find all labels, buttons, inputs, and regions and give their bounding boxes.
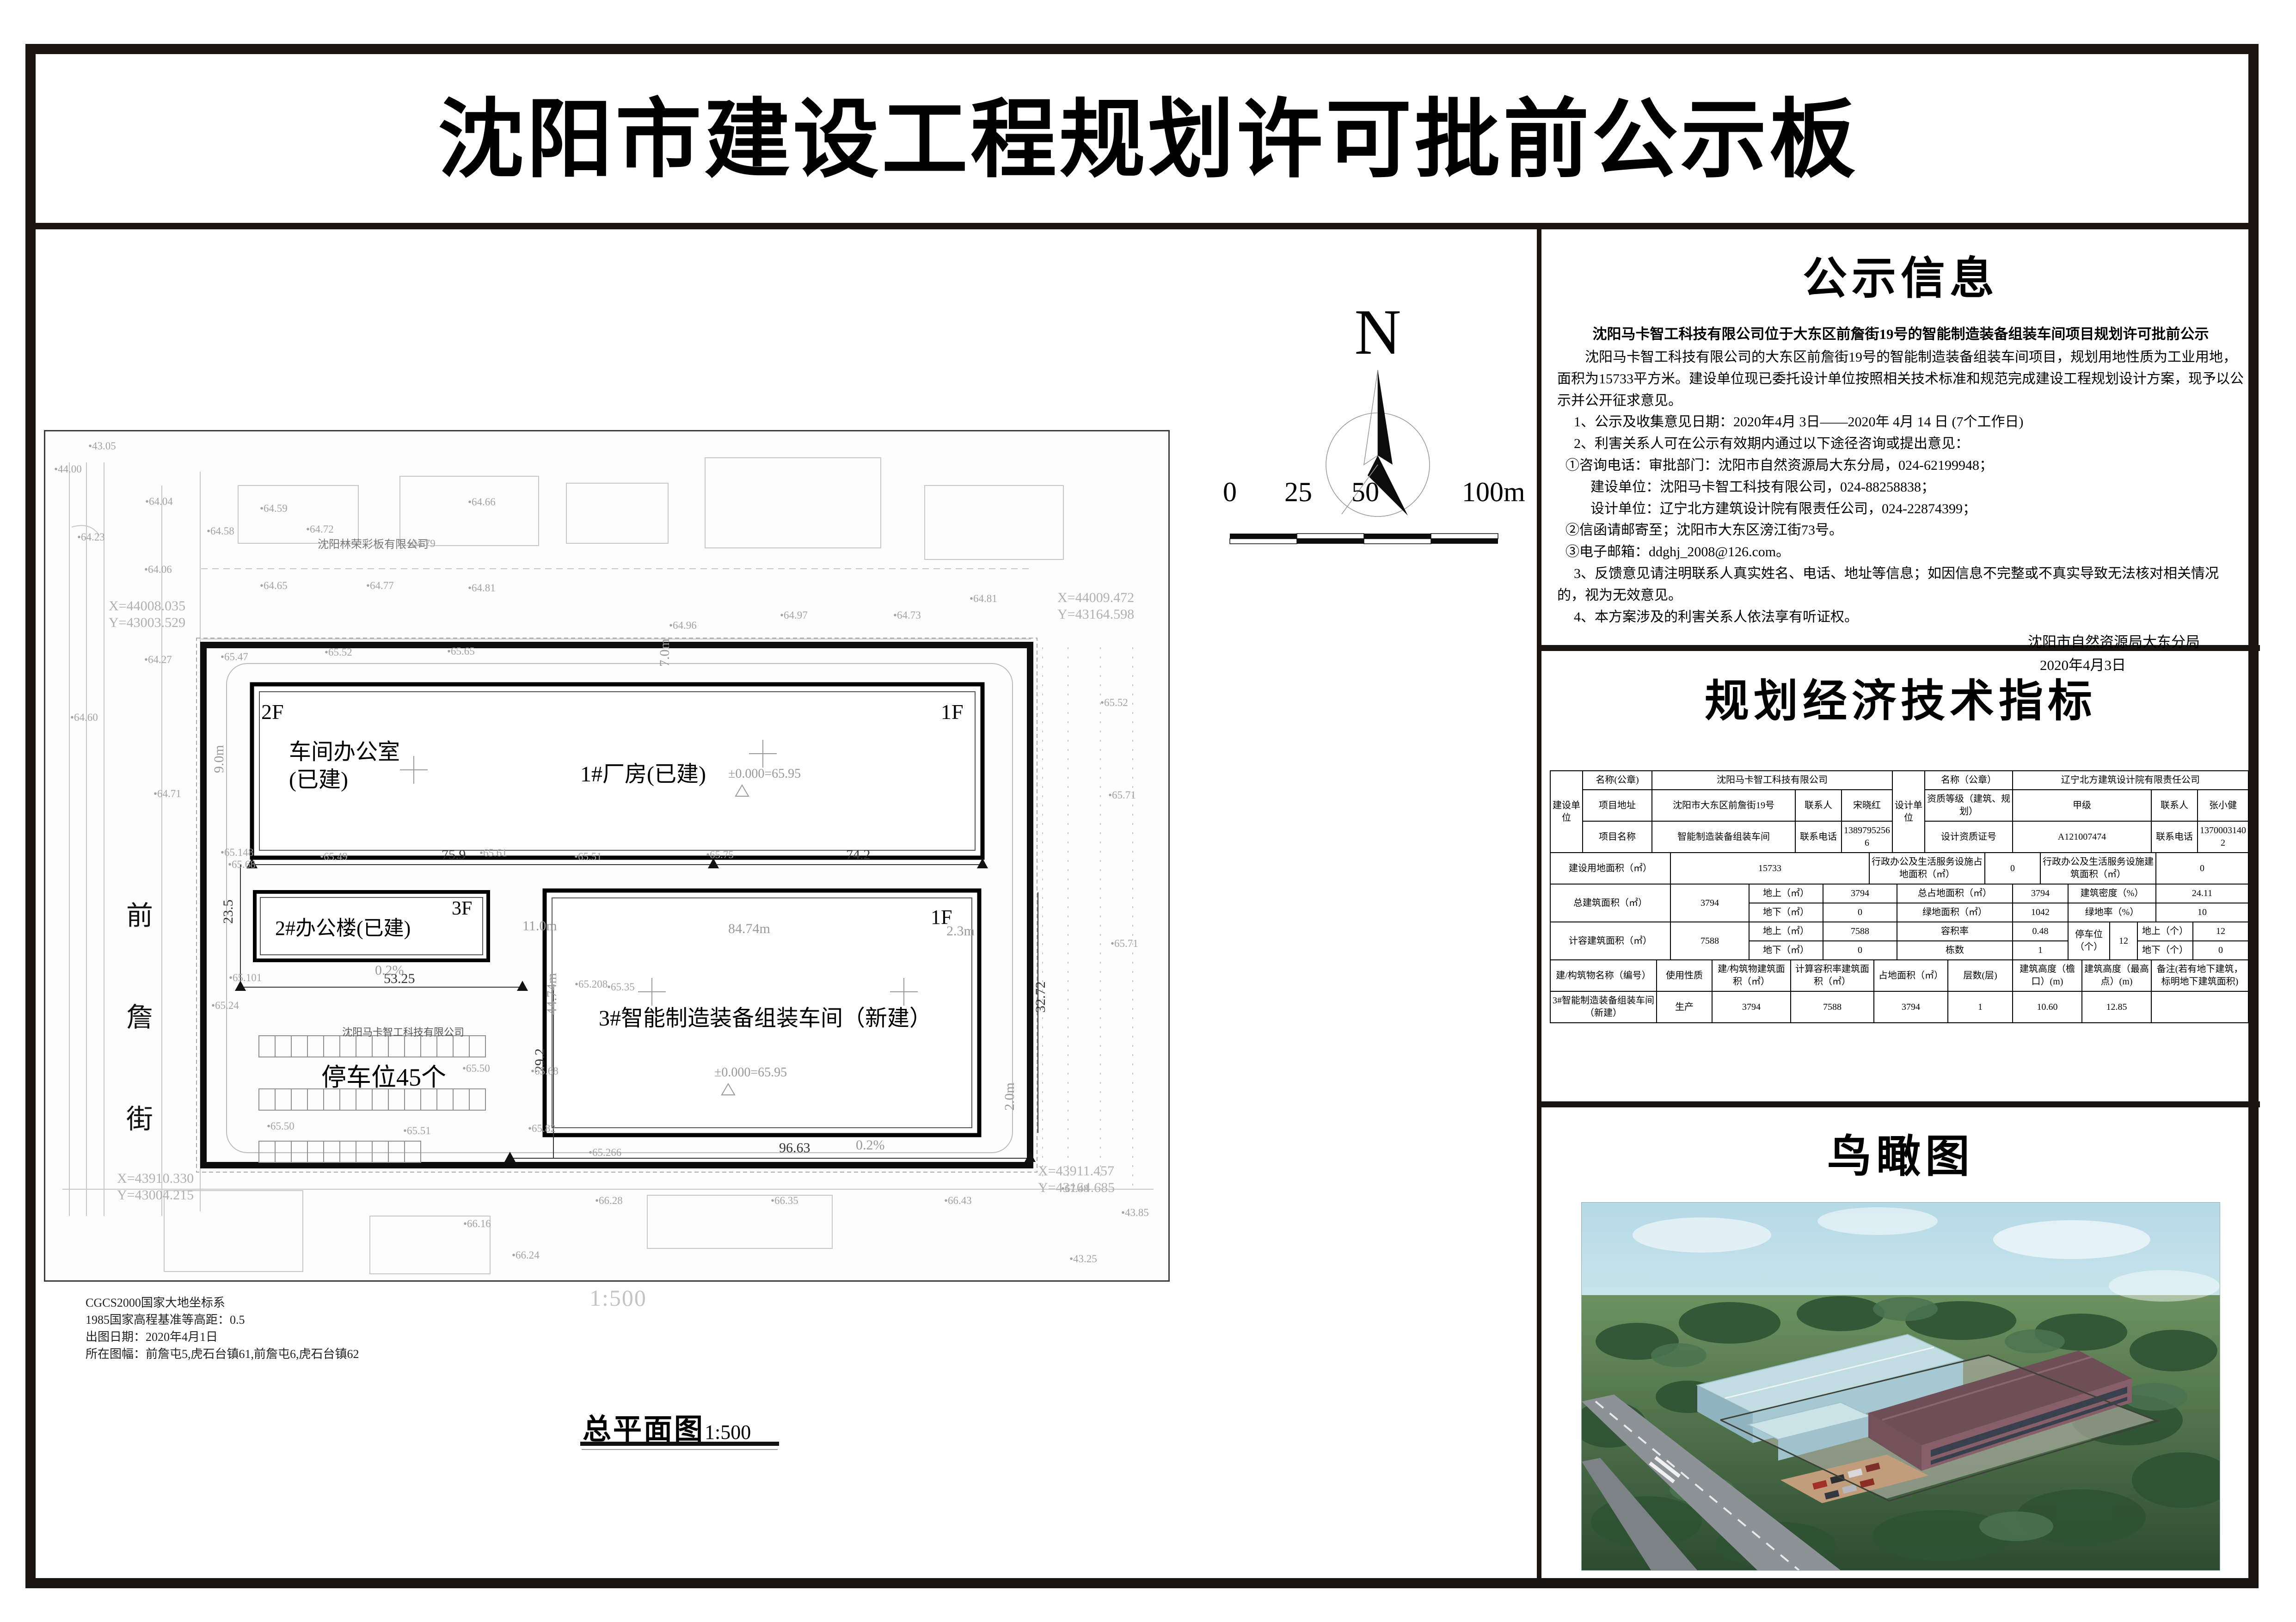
- table-cell: 地上（㎡）: [1749, 884, 1823, 903]
- notice-subtitle: 沈阳马卡智工科技有限公司位于大东区前詹街19号的智能制造装备组装车间项目规划许可…: [1541, 322, 2260, 343]
- dimension-label: 9.0m: [211, 745, 227, 773]
- table-cell: 占地面积（㎡）: [1874, 960, 1948, 991]
- dimension-label: 0.2%: [856, 1137, 885, 1153]
- coordinate-label-y: Y=43004.215: [117, 1187, 194, 1203]
- elevation-label: •64.59: [260, 503, 288, 514]
- table-cell: 沈阳马卡智工科技有限公司: [1652, 771, 1892, 790]
- notice-paragraph-10: 4、本方案涉及的利害关系人依法享有听证权。: [1557, 607, 2244, 628]
- table-cell: 0: [2193, 941, 2248, 960]
- elevation-label: •64.97: [780, 609, 808, 621]
- building1-floors-left: 2F: [261, 700, 284, 724]
- table-cell: 项目地址: [1583, 790, 1652, 821]
- elevation-label: •64.96: [669, 620, 697, 631]
- dimension-label: 2.3m: [946, 923, 975, 939]
- table-cell: 生产: [1657, 991, 1712, 1023]
- table-cell: 联系电话: [2151, 821, 2198, 853]
- notice-title: 公示信息: [1541, 242, 2260, 307]
- table-cell: 层数(层): [1948, 960, 2013, 991]
- elevation-label: •65.50: [267, 1120, 295, 1132]
- table-cell: 计容建筑面积（㎡）: [1550, 922, 1670, 960]
- table-cell: 绿地面积（㎡）: [1897, 903, 2013, 922]
- elevation-label: •65.68: [228, 859, 256, 870]
- notice-section: 公示信息 沈阳马卡智工科技有限公司位于大东区前詹街19号的智能制造装备组装车间项…: [1541, 231, 2260, 643]
- table-cell: 3794: [2013, 884, 2068, 903]
- table-cell: 张小健: [2198, 790, 2248, 821]
- table-cell: 项目名称: [1583, 821, 1652, 853]
- table-cell: 12: [2110, 922, 2137, 960]
- indicators-table-parties: 建设单位名称(公章)沈阳马卡智工科技有限公司设计单位名称（公章）辽宁北方建筑设计…: [1550, 770, 2249, 853]
- parking-label: 停车位45个: [321, 1063, 446, 1091]
- coordinate-label-y: Y=43003.529: [109, 615, 185, 630]
- table-cell: 1: [1948, 991, 2013, 1023]
- section-divider-2: [1541, 1101, 2260, 1107]
- coordinate-label-y: Y=43164.598: [1057, 607, 1134, 622]
- elevation-label: •64.27: [144, 654, 172, 665]
- table-cell: 3794: [1712, 991, 1791, 1023]
- elevation-label: •65.52: [325, 646, 352, 658]
- dimension-label: 96.63: [779, 1140, 810, 1155]
- dimension-label: 75.9: [442, 847, 466, 862]
- elevation-label: •44.00: [54, 463, 82, 475]
- elevation-label: •65.75: [706, 849, 734, 860]
- indicators-title: 规划经济技术指标: [1541, 665, 2260, 729]
- elevation-label: •65.49: [320, 851, 348, 862]
- owner-company-label: 沈阳马卡智工科技有限公司: [342, 1026, 464, 1038]
- indicators-section: 规划经济技术指标: [1541, 651, 2260, 729]
- north-label: N: [1354, 296, 1401, 368]
- poster-title: 沈阳市建设工程规划许可批前公示板: [0, 69, 2296, 194]
- notice-paragraph-2: 1、公示及收集意见日期：2020年4月 3日——2020年 4月 14 日 (7…: [1557, 412, 2244, 433]
- table-cell: 联系人: [2151, 790, 2198, 821]
- table-cell: [2151, 991, 2248, 1023]
- table-cell: 0: [1823, 941, 1897, 960]
- table-cell: 设计资质证号: [1925, 821, 2013, 853]
- elevation-label: •65.208: [575, 978, 608, 990]
- table-cell: 12: [2193, 922, 2248, 941]
- table-cell: 0.48: [2013, 922, 2068, 941]
- table-cell: 0: [1985, 853, 2040, 884]
- building2-floors: 3F: [452, 898, 472, 919]
- svg-text:街: 街: [126, 1104, 153, 1134]
- dimension-label: 11.0m: [522, 918, 557, 934]
- aerial-render: [1581, 1202, 2220, 1571]
- plan-caption: 总平面图1:500: [583, 1406, 751, 1447]
- elevation-label: •66.16: [463, 1218, 491, 1229]
- elevation-label: •65.68: [531, 1065, 559, 1077]
- elevation-label: •64.79: [408, 538, 436, 549]
- elevation-label: •65.65: [447, 645, 475, 657]
- dimension-label: 44.74m: [544, 973, 559, 1015]
- needle-black: [1378, 370, 1393, 465]
- elevation-label: •64.65: [260, 580, 288, 591]
- notice-body: 沈阳马卡智工科技有限公司的大东区前詹街19号的智能制造装备组装车间项目，规划用地…: [1541, 343, 2260, 628]
- signature-org: 沈阳市自然资源局大东分局: [1541, 631, 2260, 654]
- elevation-label: •64.06: [144, 564, 172, 575]
- dimension-label: 0.2%: [375, 963, 404, 978]
- coordinate-label-y: Y=43164.685: [1038, 1180, 1115, 1195]
- table-cell: 1042: [2013, 903, 2068, 922]
- table-cell: 10.60: [2013, 991, 2082, 1023]
- notice-board-poster: 沈阳市建设工程规划许可批前公示板: [0, 0, 2296, 1622]
- coordinate-label-x: X=44009.472: [1057, 590, 1134, 605]
- table-cell: 建设单位: [1550, 771, 1583, 853]
- table-cell: 智能制造装备组装车间: [1652, 821, 1795, 853]
- table-cell: 资质等级（建筑、规划）: [1925, 790, 2013, 821]
- plan-notes: CGCS2000国家大地坐标系 1985国家高程基准等高距：0.5 出图日期：2…: [86, 1295, 359, 1363]
- elevation-label: •43.85: [1121, 1207, 1149, 1218]
- elevation-label: •64.23: [77, 531, 105, 543]
- aerial-render-graphic: [1582, 1203, 2220, 1570]
- table-cell: 0: [2156, 853, 2248, 884]
- svg-text:前: 前: [126, 901, 153, 931]
- table-cell: 使用性质: [1657, 960, 1712, 991]
- indicators-table-buildings: 建/构筑物名称（编号）使用性质建/构筑物建筑面积（㎡）计算容积率建筑面积（㎡）占…: [1550, 959, 2249, 1023]
- table-cell: 绿地率（%）: [2068, 903, 2156, 922]
- coordinate-label-x: X=43910.330: [117, 1171, 194, 1186]
- table-cell: 地下（个）: [2137, 941, 2193, 960]
- table-cell: 总占地面积（㎡）: [1897, 884, 2013, 903]
- table-cell: 13897952566: [1842, 821, 1892, 853]
- notice-paragraph-3: 2、利害关系人可在公示有效期内通过以下途径咨询或提出意见：: [1557, 433, 2244, 455]
- elevation-label: •65.51: [403, 1125, 431, 1137]
- elevation-label: •64.60: [70, 712, 98, 723]
- elevation-label: •66.43: [944, 1195, 972, 1206]
- coordinate-label-x: X=44008.035: [109, 598, 185, 614]
- notice-paragraph-5: 建设单位：沈阳马卡智工科技有限公司，024-88258838；: [1557, 477, 2244, 498]
- scale-tick-0: 0: [1223, 476, 1237, 508]
- table-cell: 3794: [1670, 884, 1749, 922]
- table-cell: 1: [2013, 941, 2068, 960]
- elevation-label: •65.71: [1108, 789, 1136, 801]
- dimension-label: 23.5: [221, 900, 236, 924]
- site-plan-drawing: 2F 1F 车间办公室 (已建) 1#厂房(已建) ±0.000=65.95 2…: [44, 430, 1170, 1282]
- table-cell: 地下（㎡）: [1749, 941, 1823, 960]
- elevation-label: •64.04: [145, 496, 173, 507]
- elevation-label: •64.73: [893, 609, 921, 621]
- table-cell: 0: [1823, 903, 1897, 922]
- indicators-table-total-area: 总建筑面积（㎡）3794地上（㎡）3794总占地面积（㎡）3794建筑密度（%）…: [1550, 884, 2249, 922]
- elevation-label: •66.28: [595, 1195, 623, 1206]
- table-cell: 容积率: [1897, 922, 2013, 941]
- title-divider: [36, 223, 2248, 229]
- elevation-label: •65.82: [528, 1123, 556, 1134]
- scale-tick-25: 25: [1284, 476, 1312, 508]
- building1-name: 1#厂房(已建): [580, 762, 706, 786]
- dimension-label: 7.0m: [657, 639, 672, 667]
- table-cell: 建筑密度（%）: [2068, 884, 2156, 903]
- aerial-title: 鸟瞰图: [1541, 1120, 2260, 1185]
- table-cell: A121007474: [2013, 821, 2151, 853]
- elevation-label: •66.35: [771, 1195, 798, 1206]
- table-cell: 7588: [1823, 922, 1897, 941]
- elevation-label: •65.266: [589, 1147, 621, 1158]
- vertical-divider: [1537, 223, 1541, 1583]
- elevation-label: •64.66: [468, 496, 496, 508]
- elevation-label: •65.148: [221, 847, 253, 858]
- elevation-label: •64.58: [207, 525, 234, 537]
- table-cell: 地下（㎡）: [1749, 903, 1823, 922]
- table-cell: 建设用地面积（㎡）: [1550, 853, 1670, 884]
- building2-name: 2#办公楼(已建): [275, 917, 411, 940]
- elevation-label: •65.61: [479, 847, 507, 859]
- scale-tick-100: 100m: [1462, 476, 1525, 508]
- table-cell: 栋数: [1897, 941, 2013, 960]
- elevation-label: •64.72: [306, 523, 334, 535]
- aerial-section: 鸟瞰图: [1541, 1107, 2260, 1185]
- table-cell: 12.85: [2082, 991, 2151, 1023]
- elevation-labels: •43.05•44.00•64.04•64.59•64.72•64.66•64.…: [54, 440, 1149, 1265]
- table-cell: 计算容积率建筑面积（㎡）: [1791, 960, 1874, 991]
- needle-outline: [1364, 370, 1378, 465]
- plan-scale-watermark: 1:500: [589, 1284, 647, 1311]
- elevation-label: •65.24: [211, 1000, 239, 1011]
- table-cell: 名称(公章): [1583, 771, 1652, 790]
- dimension-label: 84.74m: [728, 921, 770, 936]
- elevation-label: •43.05: [88, 440, 116, 452]
- table-cell: 联系电话: [1795, 821, 1842, 853]
- scale-bar: 0 25 50 100m: [1202, 476, 1526, 550]
- notice-paragraph-8: ③电子邮箱：ddghj_2008@126.com。: [1557, 541, 2244, 563]
- scale-tick-50: 50: [1351, 476, 1379, 508]
- building1-left-name: 车间办公室: [289, 740, 400, 764]
- indicators-table-land: 建设用地面积（㎡）15733行政办公及生活服务设施占地面积（㎡）0行政办公及生活…: [1550, 852, 2249, 885]
- elevation-label: •64.81: [970, 593, 997, 604]
- parking-stalls: [259, 1036, 485, 1162]
- elevation-label: •65.50: [462, 1063, 490, 1074]
- table-cell: 地上（个）: [2137, 922, 2193, 941]
- street-name: 前 詹 街: [126, 901, 153, 1134]
- building3-level: ±0.000=65.95: [714, 1065, 787, 1080]
- dimension-label: 2.0m: [1002, 1082, 1017, 1111]
- svg-text:詹: 詹: [126, 1002, 153, 1032]
- notice-paragraph-6: 设计单位：辽宁北方建筑设计院有限责任公司，024-22874399；: [1557, 498, 2244, 520]
- table-cell: 建筑高度（檐口）(m): [2013, 960, 2082, 991]
- table-cell: 7588: [1670, 922, 1749, 960]
- table-cell: 地上（㎡）: [1749, 922, 1823, 941]
- table-cell: 联系人: [1795, 790, 1842, 821]
- elevation-label: •64.77: [366, 580, 394, 591]
- table-cell: 甲级: [2013, 790, 2151, 821]
- elevation-label: •43.25: [1069, 1253, 1097, 1265]
- elevation-label: •65.51: [574, 851, 602, 862]
- caption-underline: [580, 1442, 779, 1446]
- table-cell: 辽宁北方建筑设计院有限责任公司: [2013, 771, 2248, 790]
- table-cell: 3794: [1874, 991, 1948, 1023]
- table-cell: 24.11: [2156, 884, 2248, 903]
- table-cell: 建/构筑物名称（编号）: [1550, 960, 1657, 991]
- dimension-label: 74.2: [846, 847, 871, 862]
- indicators-table-capacity: 计容建筑面积（㎡）7588地上（㎡）7588容积率0.48停车位（个）12地上（…: [1550, 922, 2249, 960]
- elevation-label: •65.47: [221, 651, 248, 663]
- caption-underline-2: [582, 1449, 778, 1450]
- table-cell: 建筑高度（最高点）(m): [2082, 960, 2151, 991]
- coordinate-label-x: X=43911.457: [1038, 1163, 1114, 1179]
- table-cell: 沈阳市大东区前詹街19号: [1652, 790, 1795, 821]
- table-cell: 宋晓红: [1842, 790, 1892, 821]
- elevation-label: •66.24: [512, 1249, 540, 1261]
- elevation-label: •65.52: [1100, 697, 1128, 708]
- table-cell: 3794: [1823, 884, 1897, 903]
- table-cell: 3#智能制造装备组装车间（新建）: [1550, 991, 1657, 1023]
- notice-paragraph-4: ①咨询电话：审批部门：沈阳市自然资源局大东分局，024-62199948；: [1557, 455, 2244, 477]
- dimension-label: 32.72: [1033, 982, 1048, 1013]
- elevation-label: •64.81: [468, 582, 496, 594]
- elevation-label: •65.101: [229, 972, 262, 983]
- table-cell: 备注(若有地下建筑，标明地下建筑面积): [2151, 960, 2248, 991]
- table-cell: 建/构筑物建筑面积（㎡）: [1712, 960, 1791, 991]
- table-cell: 停车位（个）: [2068, 922, 2110, 960]
- elevation-label: •65.71: [1111, 938, 1138, 949]
- indicators-table: 建设单位名称(公章)沈阳马卡智工科技有限公司设计单位名称（公章）辽宁北方建筑设计…: [1550, 771, 2249, 1023]
- building1-left-name2: (已建): [289, 768, 348, 792]
- building3-name: 3#智能制造装备组装车间（新建）: [599, 1006, 932, 1031]
- table-cell: 设计单位: [1892, 771, 1925, 853]
- table-cell: 行政办公及生活服务设施建筑面积（㎡）: [2040, 853, 2156, 884]
- table-cell: 名称（公章）: [1925, 771, 2013, 790]
- table-cell: 15733: [1670, 853, 1869, 884]
- building1-floors-right: 1F: [941, 700, 964, 724]
- table-cell: 总建筑面积（㎡）: [1550, 884, 1670, 922]
- table-cell: 行政办公及生活服务设施占地面积（㎡）: [1869, 853, 1985, 884]
- building1-level: ±0.000=65.95: [728, 767, 801, 781]
- notice-paragraph-1: 沈阳马卡智工科技有限公司的大东区前詹街19号的智能制造装备组装车间项目，规划用地…: [1557, 347, 2244, 412]
- elevation-label: •64.71: [153, 788, 181, 799]
- scale-bar-graphic: [1202, 531, 1526, 554]
- table-cell: 13700031402: [2198, 821, 2248, 853]
- elevation-label: •65.35: [607, 981, 635, 993]
- table-cell: 7588: [1791, 991, 1874, 1023]
- notice-paragraph-9: 3、反馈意见请注明联系人真实姓名、电话、地址等信息；如因信息不完整或不真实导致无…: [1557, 563, 2244, 607]
- notice-paragraph-7: ②信函请邮寄至；沈阳市大东区滂江街73号。: [1557, 520, 2244, 541]
- table-cell: 10: [2156, 903, 2248, 922]
